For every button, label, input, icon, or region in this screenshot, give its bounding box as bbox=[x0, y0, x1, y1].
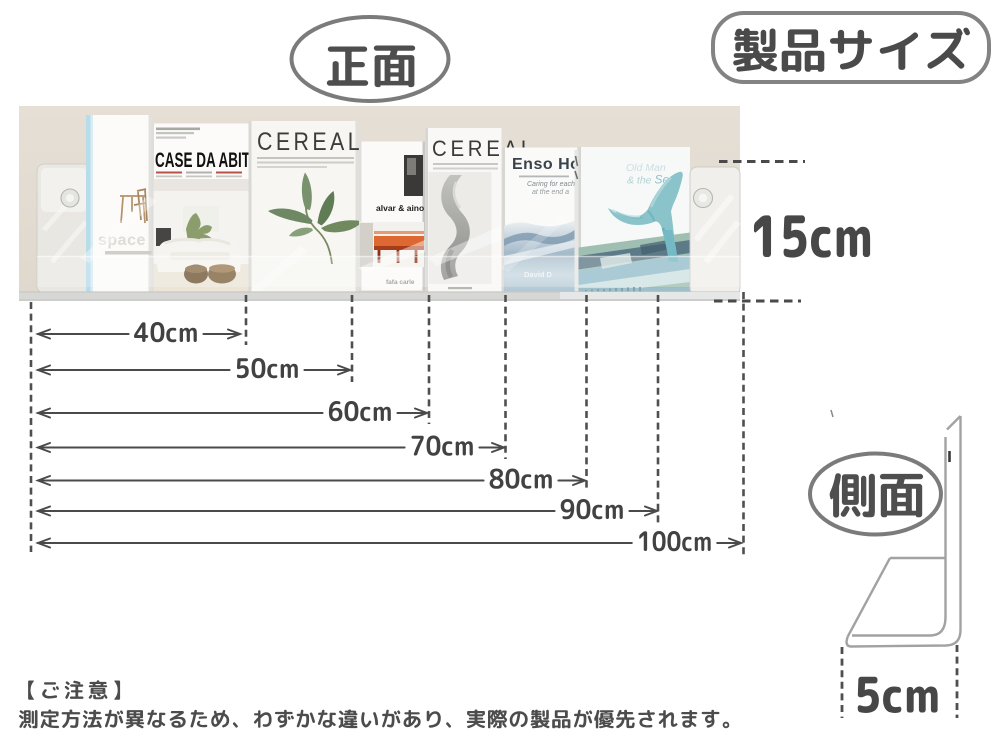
svg-text:CASE DA ABIT: CASE DA ABIT bbox=[155, 149, 250, 172]
svg-text:at the end a: at the end a bbox=[532, 189, 569, 196]
svg-text:CEREAL: CEREAL bbox=[257, 128, 363, 156]
svg-text:Caring for each: Caring for each bbox=[527, 181, 575, 188]
svg-text:Enso Ho: Enso Ho bbox=[512, 156, 580, 173]
